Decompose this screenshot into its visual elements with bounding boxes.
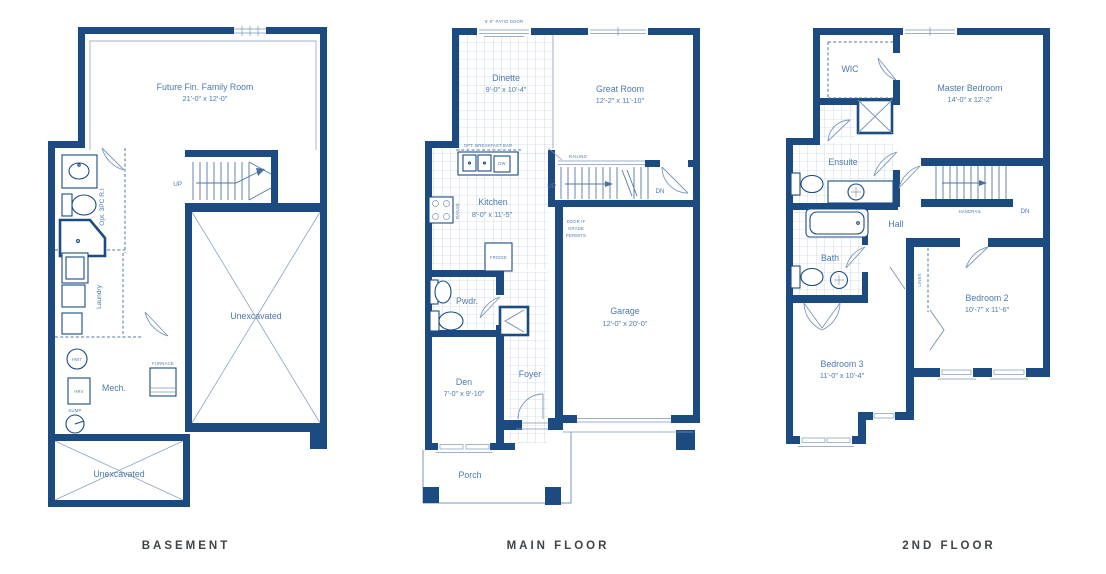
unexcavated-main-label: Unexcavated bbox=[230, 311, 281, 321]
bedroom2-door-arc bbox=[966, 247, 988, 268]
hrv-label: HRV bbox=[74, 389, 83, 394]
kitchen-sink-counter bbox=[458, 152, 518, 175]
floorplan-drawing: Future Fin. Family Room 21'-0" x 12'-0" … bbox=[0, 0, 1106, 574]
pwdr-label: Pwdr. bbox=[456, 296, 478, 306]
main-dn-label: DN bbox=[655, 188, 665, 195]
dinette-tiles bbox=[459, 35, 553, 160]
bath-sink bbox=[831, 272, 848, 289]
second-floor-title: 2ND FLOOR bbox=[902, 540, 995, 552]
basement-window bbox=[234, 26, 266, 36]
linen-label: LINEN bbox=[917, 273, 922, 286]
bedroom3-window bbox=[798, 438, 854, 447]
breakfast-bar-label: OPT. BREAKFAST BAR bbox=[464, 143, 512, 148]
ensuite-shower bbox=[858, 100, 892, 133]
basement-plan: Future Fin. Family Room 21'-0" x 12'-0" … bbox=[48, 26, 327, 552]
bedroom2-label: Bedroom 2 bbox=[965, 293, 1008, 303]
furnace-label: FURNACE bbox=[152, 361, 174, 366]
bedroom3-dims: 11'-0" x 10'-4" bbox=[820, 371, 865, 380]
bedroom3-double-door bbox=[804, 303, 840, 330]
ensuite-vanity bbox=[828, 181, 893, 203]
range-label: RANGE bbox=[455, 203, 460, 219]
familyroom-dims: 21'-0" x 12'-0" bbox=[183, 94, 228, 103]
basement-stairs bbox=[193, 162, 271, 200]
patio-door bbox=[477, 27, 531, 37]
garage-label: Garage bbox=[610, 306, 639, 316]
door-grade-2: GRADE bbox=[568, 226, 584, 231]
main-up-label: UP bbox=[547, 183, 556, 190]
kitchen-label: Kitchen bbox=[478, 197, 507, 207]
unexcavated-small-label: Unexcavated bbox=[93, 469, 144, 479]
laundry-label: Laundry bbox=[96, 284, 103, 309]
main-floor-title: MAIN FLOOR bbox=[507, 540, 610, 552]
master-label: Master Bedroom bbox=[937, 83, 1002, 93]
sump-label: SUMP bbox=[69, 408, 82, 413]
railing-label: RAILING bbox=[569, 154, 587, 159]
main-stairs bbox=[558, 161, 648, 199]
basement-title: BASEMENT bbox=[142, 540, 231, 552]
hall-label: Hall bbox=[888, 219, 903, 229]
mech-label: Mech. bbox=[102, 383, 126, 393]
laundry-tubs bbox=[62, 253, 88, 334]
dinette-dims: 9'-0" x 10'-4" bbox=[486, 85, 527, 94]
linen-door bbox=[890, 267, 905, 289]
basement-vanity bbox=[62, 155, 97, 188]
step-window bbox=[874, 414, 894, 419]
pwdr-toilet bbox=[430, 311, 463, 331]
master-door-arc bbox=[899, 166, 920, 188]
kitchen-dims: 8'-0" x 11'-5" bbox=[472, 210, 513, 219]
patio-door-label: 5'-0" PATIO DOOR bbox=[485, 19, 523, 24]
master-window bbox=[903, 27, 957, 36]
bath-label: Bath bbox=[821, 253, 839, 263]
handrail-label: HANDRAIL bbox=[959, 209, 982, 214]
master-dims: 14'-0" x 12'-2" bbox=[948, 95, 993, 104]
range bbox=[429, 197, 453, 223]
basement-up-label: UP bbox=[173, 181, 182, 188]
mech-door-arc bbox=[145, 312, 168, 336]
dinette-label: Dinette bbox=[492, 73, 520, 83]
foyer-label: Foyer bbox=[519, 369, 542, 379]
bathtub bbox=[806, 209, 868, 237]
familyroom-label: Future Fin. Family Room bbox=[157, 82, 254, 92]
floorplan-sheet: Future Fin. Family Room 21'-0" x 12'-0" … bbox=[0, 0, 1106, 574]
den-window bbox=[436, 443, 492, 453]
hwt-label: HWT bbox=[72, 357, 82, 362]
garage-dims: 12'-0" x 20'-0" bbox=[603, 319, 648, 328]
porch-label: Porch bbox=[459, 470, 482, 480]
wic-door-arc bbox=[878, 58, 896, 80]
bedroom2-closet-bifold bbox=[930, 310, 944, 350]
second-floor-plan: WIC Master Bedroom 14'-0" x 12'-2" Ensui… bbox=[786, 27, 1050, 552]
wic-label: WIC bbox=[841, 64, 859, 74]
opt-3pc-label: Opt. 3PC R.I bbox=[99, 188, 106, 226]
door-grade-3: PERMITS bbox=[566, 233, 586, 238]
greatroom-window bbox=[588, 27, 648, 36]
garage-entry-door-arc bbox=[662, 167, 688, 193]
furnace-unit bbox=[150, 368, 176, 396]
shower-drain bbox=[77, 240, 80, 243]
main-floor-plan: 5'-0" PATIO DOOR Dinette 9'-0" x 10'-4" … bbox=[423, 19, 700, 552]
bath-ri-door-arc bbox=[102, 148, 124, 170]
greatroom-dims: 12'-2" x 11'-10" bbox=[596, 96, 645, 105]
bedroom2-dims: 10'-7" x 11'-6" bbox=[965, 305, 1010, 314]
foyer-closet bbox=[500, 307, 528, 335]
den-label: Den bbox=[456, 377, 472, 387]
door-grade-1: DOOR IF bbox=[567, 219, 586, 224]
second-dn-label: DN bbox=[1020, 208, 1030, 215]
pwdr-sink bbox=[430, 280, 451, 304]
sump-pit bbox=[66, 415, 84, 433]
bedroom3-label: Bedroom 3 bbox=[820, 359, 863, 369]
greatroom-label: Great Room bbox=[596, 84, 644, 94]
den-dims: 7'-0" x 9'-10" bbox=[444, 389, 485, 398]
fridge-label: FRIDGE bbox=[490, 255, 507, 260]
ensuite-label: Ensuite bbox=[828, 157, 857, 167]
basement-toilet bbox=[62, 194, 96, 216]
dw-label: DW bbox=[498, 161, 505, 166]
second-stairs bbox=[936, 166, 1006, 199]
